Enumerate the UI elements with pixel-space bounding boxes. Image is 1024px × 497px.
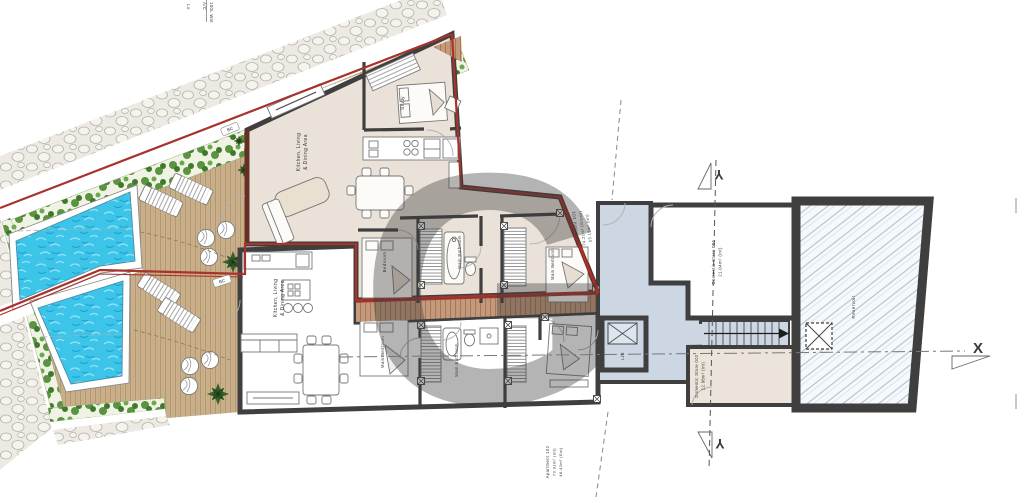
upper-main-bedroom-label: Main Bedroom bbox=[550, 248, 555, 280]
lower-main-bedroom-label: Main Bedroom bbox=[380, 336, 385, 368]
watermark-letter: G bbox=[360, 104, 617, 473]
apartment-102-id: Apartment 102 bbox=[545, 445, 550, 478]
stairs bbox=[702, 322, 789, 345]
lower-kitchen-label-1: Kitchen, Living bbox=[273, 279, 279, 318]
store1-label-2: 21.04m² (int) bbox=[718, 247, 723, 277]
lower-bathroom-label: Main Bathroom bbox=[454, 343, 459, 377]
floor-plan: BC BC G Y Y X Kitchen, Living & Dining A… bbox=[0, 0, 1024, 497]
section-marker-y-bottom-label: Y bbox=[715, 436, 725, 452]
reservoir-label: Reservoir bbox=[851, 295, 856, 318]
upper-bedroom-label: Bedroom bbox=[382, 252, 387, 273]
section-marker-y-top-label: Y bbox=[714, 167, 724, 183]
top-edge-note-3: 100L Wat bbox=[209, 2, 214, 23]
section-marker-y-top: Y bbox=[698, 163, 724, 189]
reservoir bbox=[796, 201, 929, 408]
apartment-102-area-ext: 48.42m² (Ext) bbox=[558, 447, 563, 477]
section-marker-y-bottom: Y bbox=[698, 432, 725, 458]
upper-kitchen-label-1: Kitchen, Living bbox=[296, 133, 302, 172]
store1-label-1: Domestic Store 001 bbox=[711, 239, 716, 284]
study-label: Study bbox=[400, 96, 405, 110]
store2-label-2: 12.98m² (int) bbox=[701, 362, 706, 391]
section-marker-x: X bbox=[952, 340, 990, 369]
apartment-102-area-int: 73.91m² (Int) bbox=[552, 448, 557, 476]
lower-kitchen-label-2: & Dining Area bbox=[280, 280, 286, 316]
store2-label-1: Domestic Store 002 bbox=[694, 354, 699, 397]
top-edge-note-1: Lo bbox=[186, 4, 191, 10]
lift-label: Lift bbox=[620, 352, 625, 360]
access-hatch bbox=[806, 323, 832, 349]
section-marker-x-label: X bbox=[973, 340, 983, 357]
upper-kitchen-label-2: & Dining Area bbox=[303, 134, 309, 170]
upper-bathroom-label: Main Bathroom bbox=[457, 235, 462, 269]
